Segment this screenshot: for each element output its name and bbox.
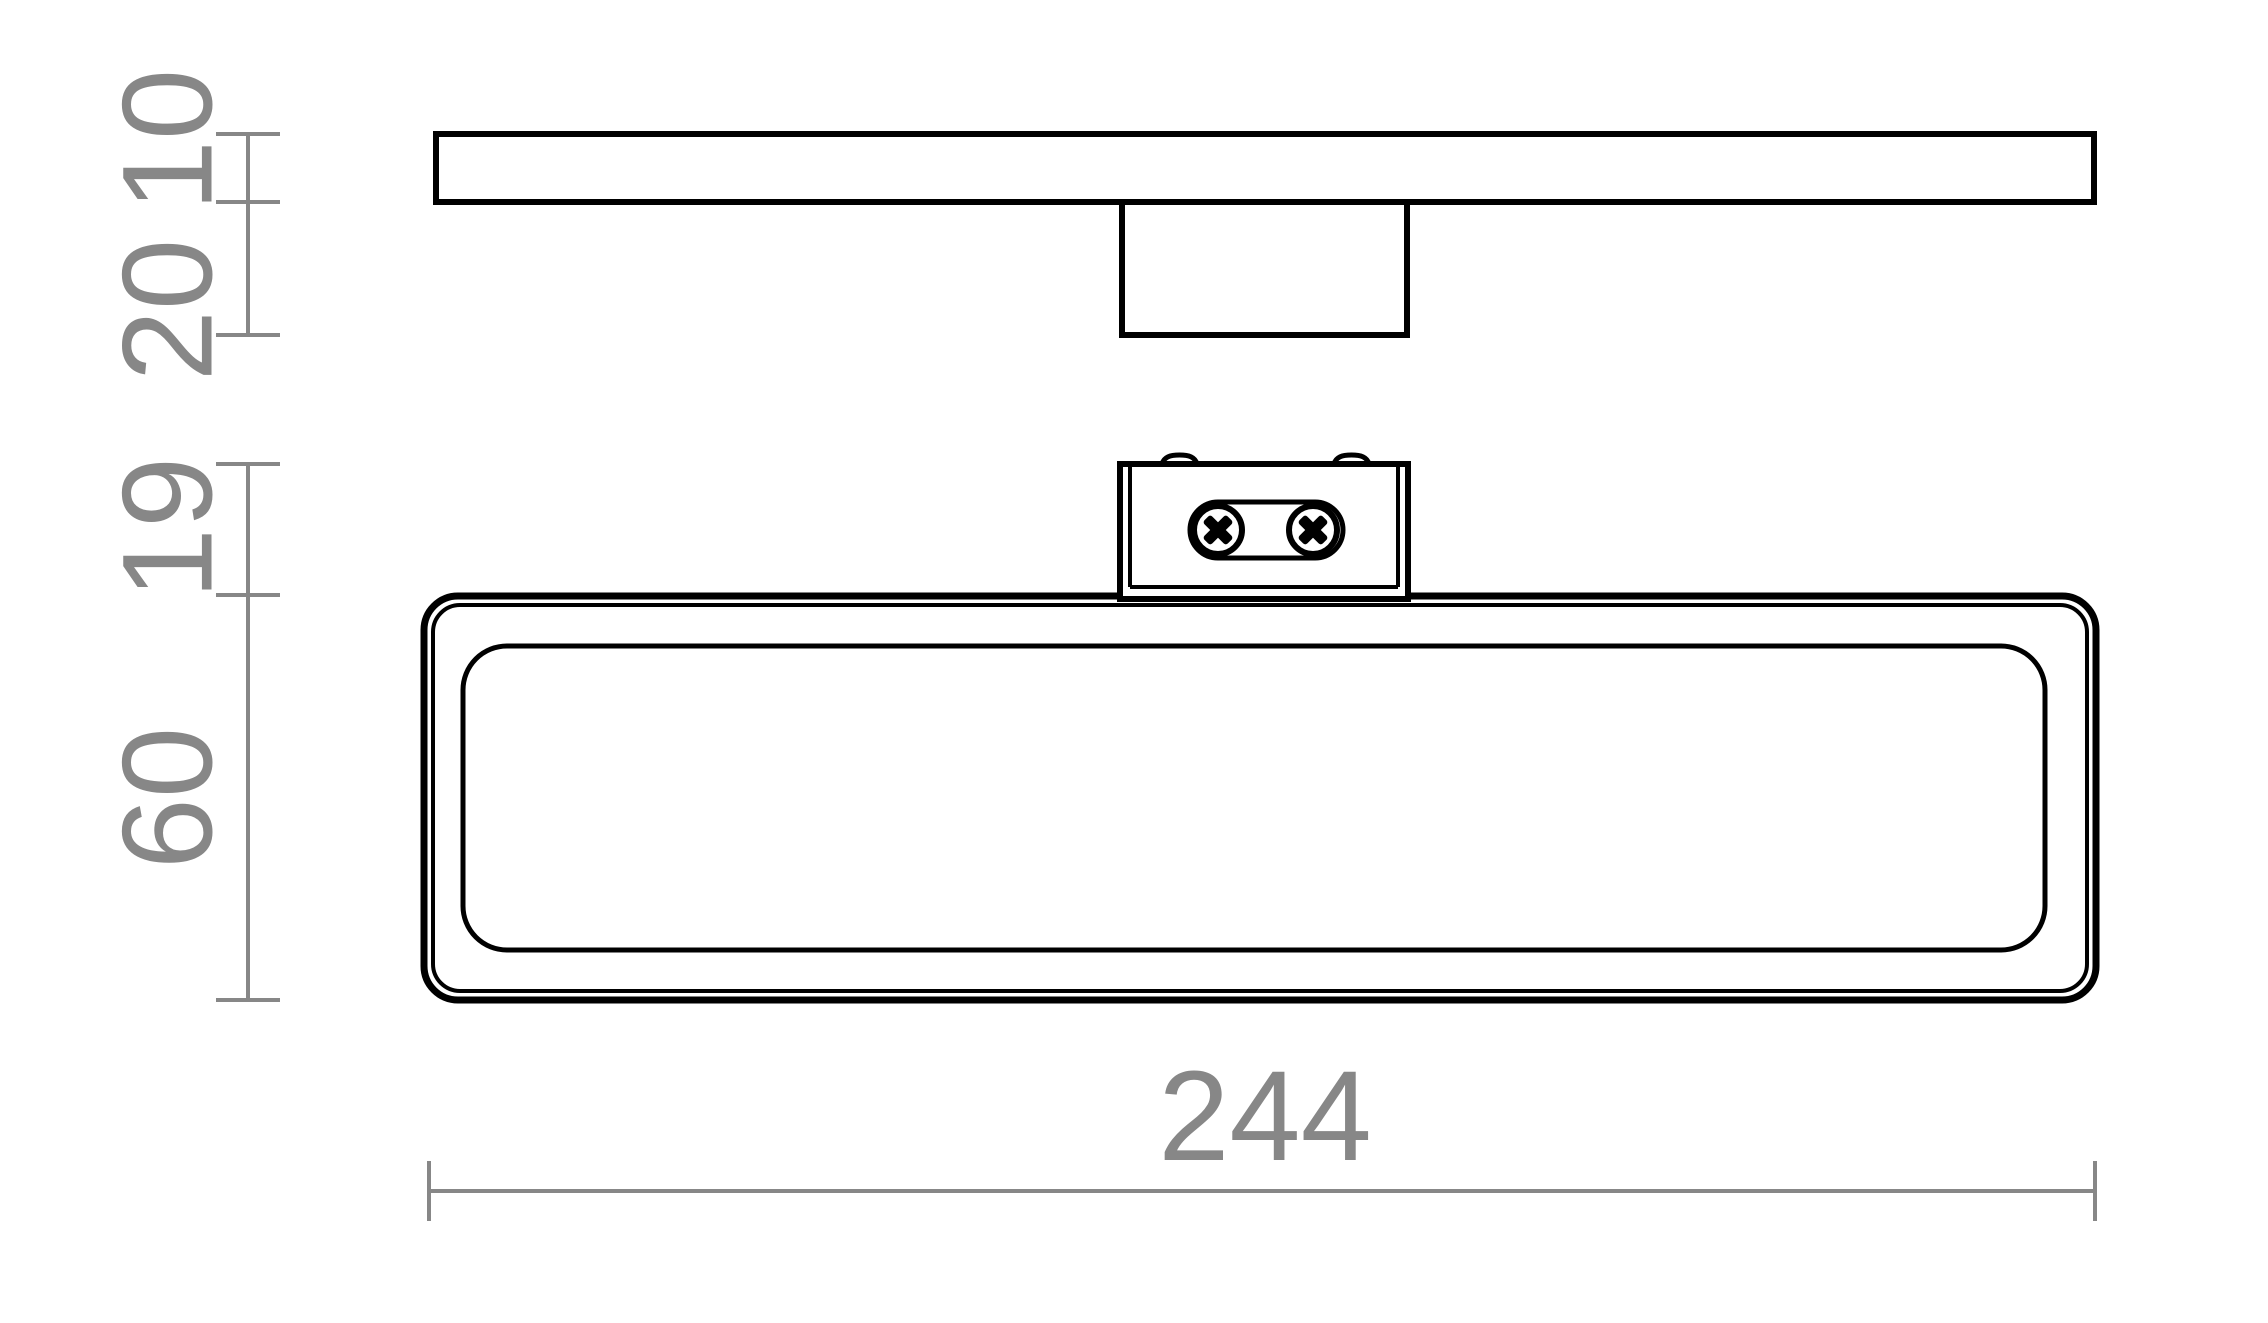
fixture-dimension-drawing: 10 20 19 60 244 [0,0,2268,1323]
dim-label-bracket-depth: 19 [97,457,240,599]
dim-label-plate-thickness: 10 [97,69,240,211]
technical-drawing-canvas: 10 20 19 60 244 [0,0,2268,1323]
mounting-bracket [1120,455,1408,599]
fixture-body [424,596,2096,1000]
dim-label-overall-width: 244 [1158,1045,1372,1188]
body-outer-outline [424,596,2096,1000]
bracket-outline [1120,464,1408,599]
mount-box [1122,201,1407,335]
dim-label-mount-box-depth: 20 [97,239,240,381]
fixture-outlines [424,134,2096,1000]
wall-plate [436,134,2094,202]
dim-label-body-height: 60 [97,727,240,869]
